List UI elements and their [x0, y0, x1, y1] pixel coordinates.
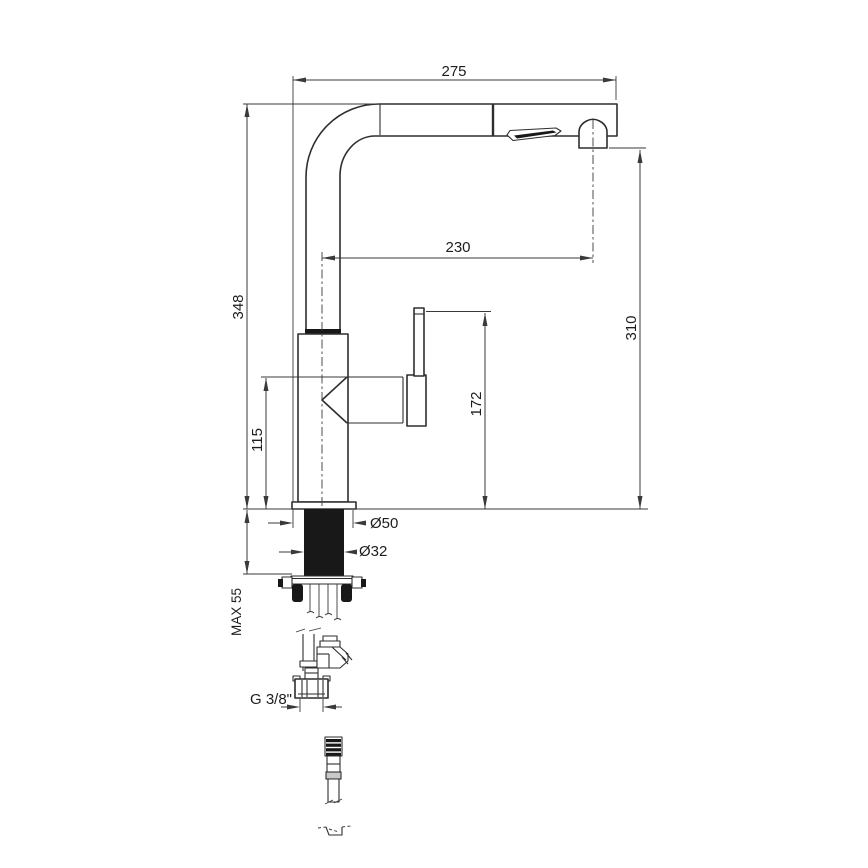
- dim-height-to-nozzle: 310: [609, 148, 646, 509]
- bracket-nub-right: [352, 577, 362, 588]
- bolt-tip-left: [278, 579, 283, 587]
- arrow-top: [245, 510, 250, 523]
- valve-pipe-break-tick-2: [309, 628, 321, 631]
- arrow-right: [603, 78, 616, 83]
- dim-label-d50: Ø50: [370, 515, 398, 532]
- dim-label-310: 310: [623, 315, 640, 340]
- valve-cap: [320, 641, 340, 647]
- handle-collar: [407, 375, 426, 426]
- hose-break-tick-4: [334, 619, 341, 621]
- dim-label-348: 348: [230, 294, 247, 319]
- dim-label-172: 172: [468, 391, 485, 416]
- hose-quick-connector: [325, 737, 342, 804]
- dim-label-230: 230: [445, 239, 470, 256]
- fragment-dash-left: [318, 827, 326, 828]
- arrow-top: [483, 313, 488, 326]
- arrow-top: [245, 104, 250, 117]
- fragment-channel: [326, 827, 342, 835]
- base-and-mounting: [243, 509, 648, 620]
- hose-break-tick-1: [307, 612, 314, 614]
- dim-label-max55: MAX 55: [229, 588, 244, 636]
- hose-break-fragment: [318, 826, 351, 835]
- arrow-top: [638, 150, 643, 163]
- mounting-stud-right: [341, 584, 352, 602]
- centerlines: [322, 120, 593, 509]
- fragment-dash-right: [342, 826, 351, 827]
- dim-reach-to-nozzle: 230: [322, 239, 593, 261]
- dim-label-g38: G 3/8": [250, 691, 292, 708]
- arrow-left-inward: [280, 521, 293, 526]
- spout-body-outline: [306, 104, 617, 333]
- bolt-tip-right: [361, 579, 366, 587]
- valve-cap-ridge: [323, 636, 337, 641]
- connector-rib-3: [326, 748, 341, 751]
- connector-band: [326, 772, 341, 779]
- hose-break-tick-3: [325, 614, 332, 616]
- hose-break-tick-2: [316, 617, 323, 619]
- arrow-right-inward: [344, 550, 357, 555]
- arrow-left: [293, 78, 306, 83]
- faucet-outline: [292, 104, 617, 509]
- arrow-left-inward: [291, 550, 304, 555]
- arrow-right-inward: [353, 521, 366, 526]
- arrow-bottom: [264, 496, 269, 509]
- arrow-bottom: [245, 496, 250, 509]
- base-flange: [292, 502, 356, 509]
- fragment-diagonal: [329, 829, 339, 832]
- arrow-bottom: [483, 496, 488, 509]
- dim-label-275: 275: [441, 63, 466, 80]
- connector-rib-1: [326, 739, 341, 742]
- connector-rib-2: [326, 744, 341, 747]
- dim-height-to-lever-top: 172: [426, 312, 491, 510]
- mounting-stud-left: [292, 584, 303, 602]
- supply-hoses: [307, 584, 341, 620]
- valve-pipe-break-tick-1: [296, 629, 305, 632]
- connector-tube: [328, 779, 339, 802]
- mounting-bracket-plate: [291, 576, 353, 584]
- arrow-top: [264, 378, 269, 391]
- drawing-page: 275 230 348 310 172 115: [0, 0, 868, 868]
- arrow-right: [580, 256, 593, 261]
- bracket-nub-left: [282, 577, 292, 588]
- threaded-shank: [304, 509, 344, 576]
- technical-drawing-canvas: 275 230 348 310 172 115: [0, 0, 868, 868]
- dim-label-115: 115: [249, 428, 266, 452]
- angle-valve-assembly: [293, 628, 352, 698]
- arrow-bottom: [245, 561, 250, 574]
- handle-lever-bar: [414, 308, 424, 376]
- dim-label-d32: Ø32: [359, 543, 387, 560]
- arrow-right-inward: [323, 705, 336, 710]
- valve-pipe-band: [300, 661, 317, 667]
- arrow-bottom: [638, 496, 643, 509]
- dim-max-deck-thickness: MAX 55: [229, 510, 292, 636]
